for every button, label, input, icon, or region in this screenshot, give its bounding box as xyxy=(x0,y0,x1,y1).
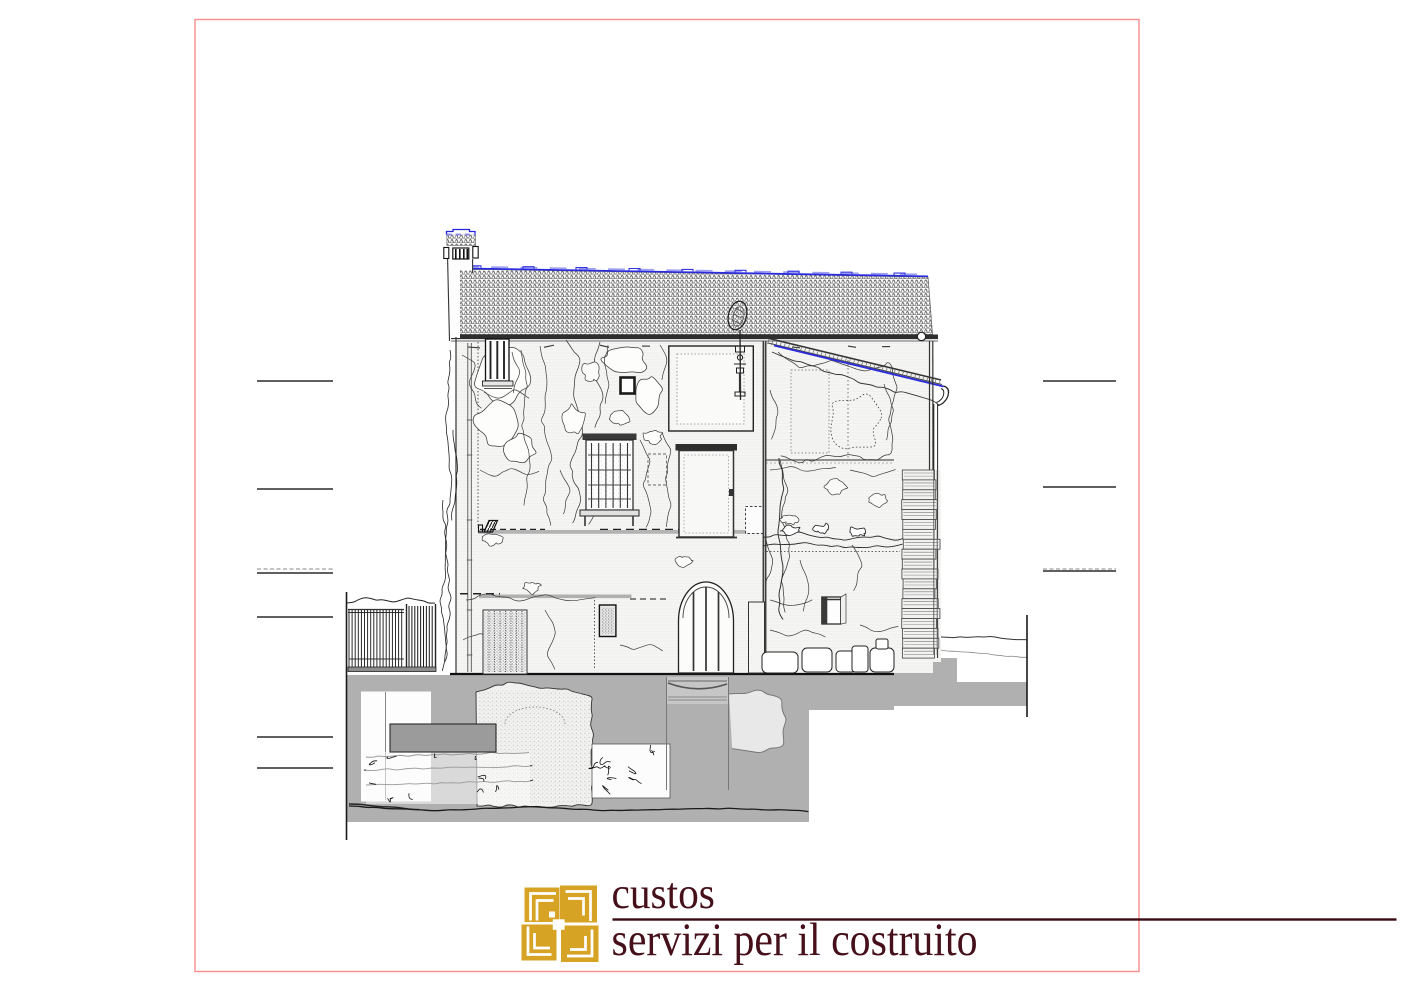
svg-text:servizi per il costruito: servizi per il costruito xyxy=(612,914,978,966)
svg-text:custos: custos xyxy=(611,870,714,918)
